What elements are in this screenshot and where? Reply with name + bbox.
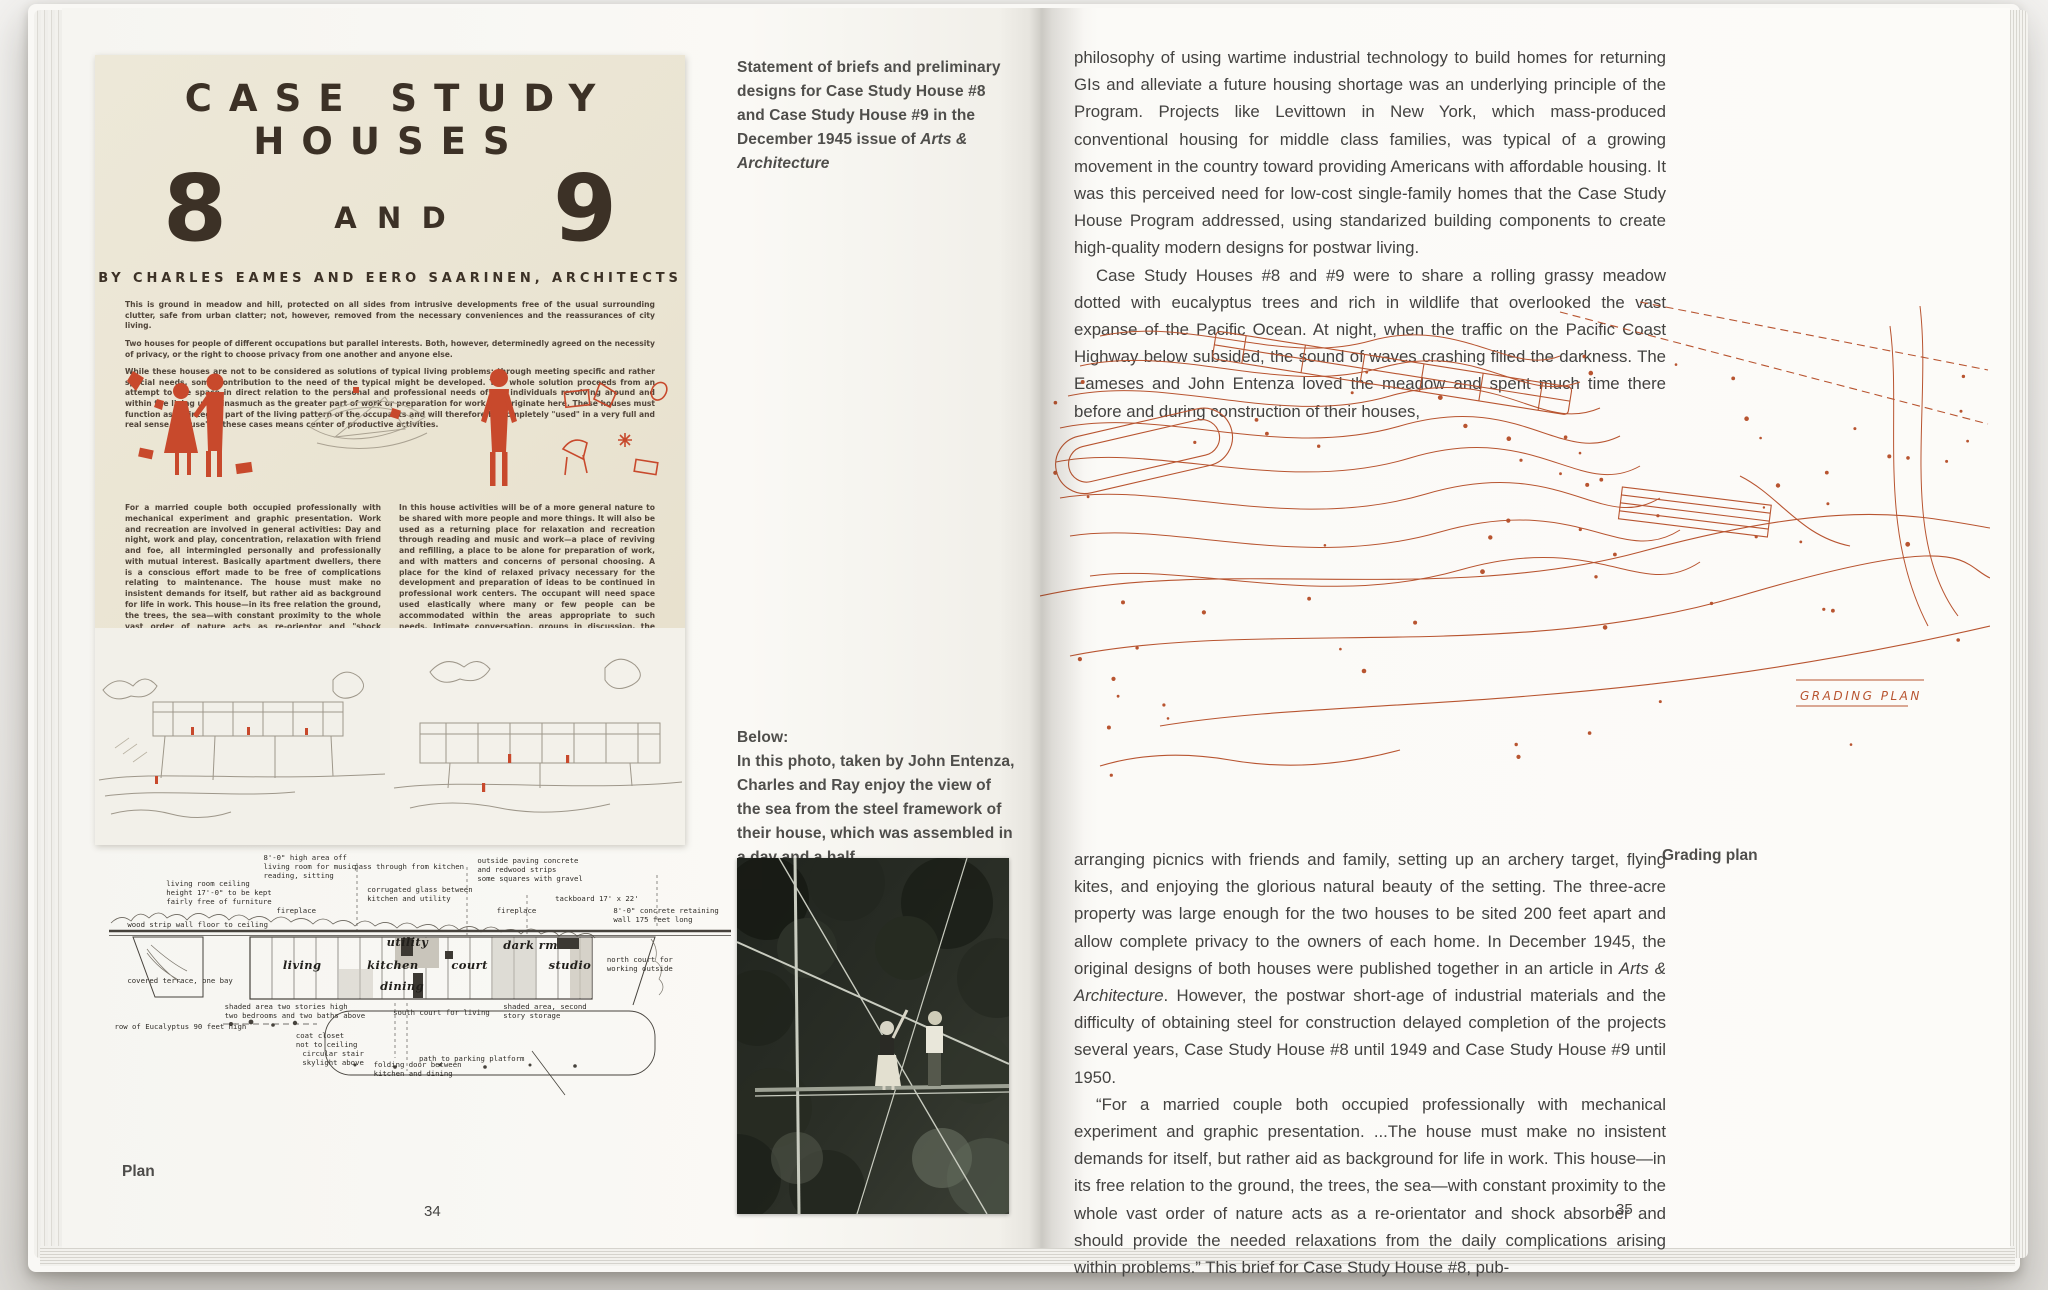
caption-photo-text: In this photo, taken by John Entenza, Ch…: [737, 750, 1015, 870]
plan-room-label: dining: [380, 979, 424, 993]
paragraph-segment: . However, the postwar short-age of indu…: [1074, 986, 1666, 1087]
grading-plan-drawing: GRADING PLAN: [1040, 296, 1990, 826]
magazine-sketch-house8: [95, 628, 390, 845]
page-number-left: 34: [424, 1203, 441, 1220]
plan-room-label: living: [283, 958, 322, 972]
magazine-illustration-figures: [95, 355, 685, 500]
plan-caption: Plan: [122, 1163, 155, 1181]
body-text-bottom: arranging picnics with friends and famil…: [1074, 846, 1666, 1281]
magazine-title: CASE STUDY HOUSES: [95, 77, 685, 163]
magazine-number-row: 8 AND 9: [95, 157, 685, 261]
plan-room-label: studio: [549, 958, 592, 972]
paragraph: “For a married couple both occupied prof…: [1074, 1091, 1666, 1281]
page-number-right: 35: [1616, 1201, 1633, 1218]
paragraph-segment: arranging picnics with friends and famil…: [1074, 850, 1666, 978]
magazine-clipping: CASE STUDY HOUSES 8 AND 9 BY CHARLES EAM…: [95, 55, 685, 845]
magazine-number-and: AND: [314, 201, 466, 235]
floor-plan: 8'-0" high area off living room for musi…: [95, 853, 743, 1145]
plan-room-label: utility: [387, 935, 429, 949]
page-stack-edge-bottom: [40, 1246, 2015, 1266]
magazine-intro-paragraph: This is ground in meadow and hill, prote…: [125, 300, 655, 332]
plan-room-label: dark rm: [503, 938, 558, 952]
plan-room-label: kitchen: [367, 958, 419, 972]
caption-photo-label: Below:: [737, 726, 1015, 750]
magazine-sketches: [95, 628, 685, 845]
caption-photo: Below: In this photo, taken by John Ente…: [737, 726, 1015, 870]
plan-room-layer: livingutilitykitchendiningcourtdark rmst…: [95, 853, 743, 1145]
magazine-number-9: 9: [553, 163, 617, 255]
paragraph: philosophy of using wartime industrial t…: [1074, 44, 1666, 262]
grading-plan-caption: Grading plan: [1662, 847, 1758, 865]
grading-plan-title-text: GRADING PLAN: [1800, 689, 1922, 703]
magazine-sketch-house9: [390, 628, 685, 845]
magazine-number-8: 8: [163, 163, 227, 255]
photo-steel-framework: [737, 858, 1009, 1214]
paragraph: arranging picnics with friends and famil…: [1074, 846, 1666, 1091]
page-stack-edge-right: [2008, 10, 2028, 1258]
caption-statement: Statement of briefs and preliminary desi…: [737, 56, 1009, 176]
magazine-byline: BY CHARLES EAMES AND EERO SAARINEN, ARCH…: [95, 271, 685, 286]
plan-room-label: court: [451, 958, 487, 972]
